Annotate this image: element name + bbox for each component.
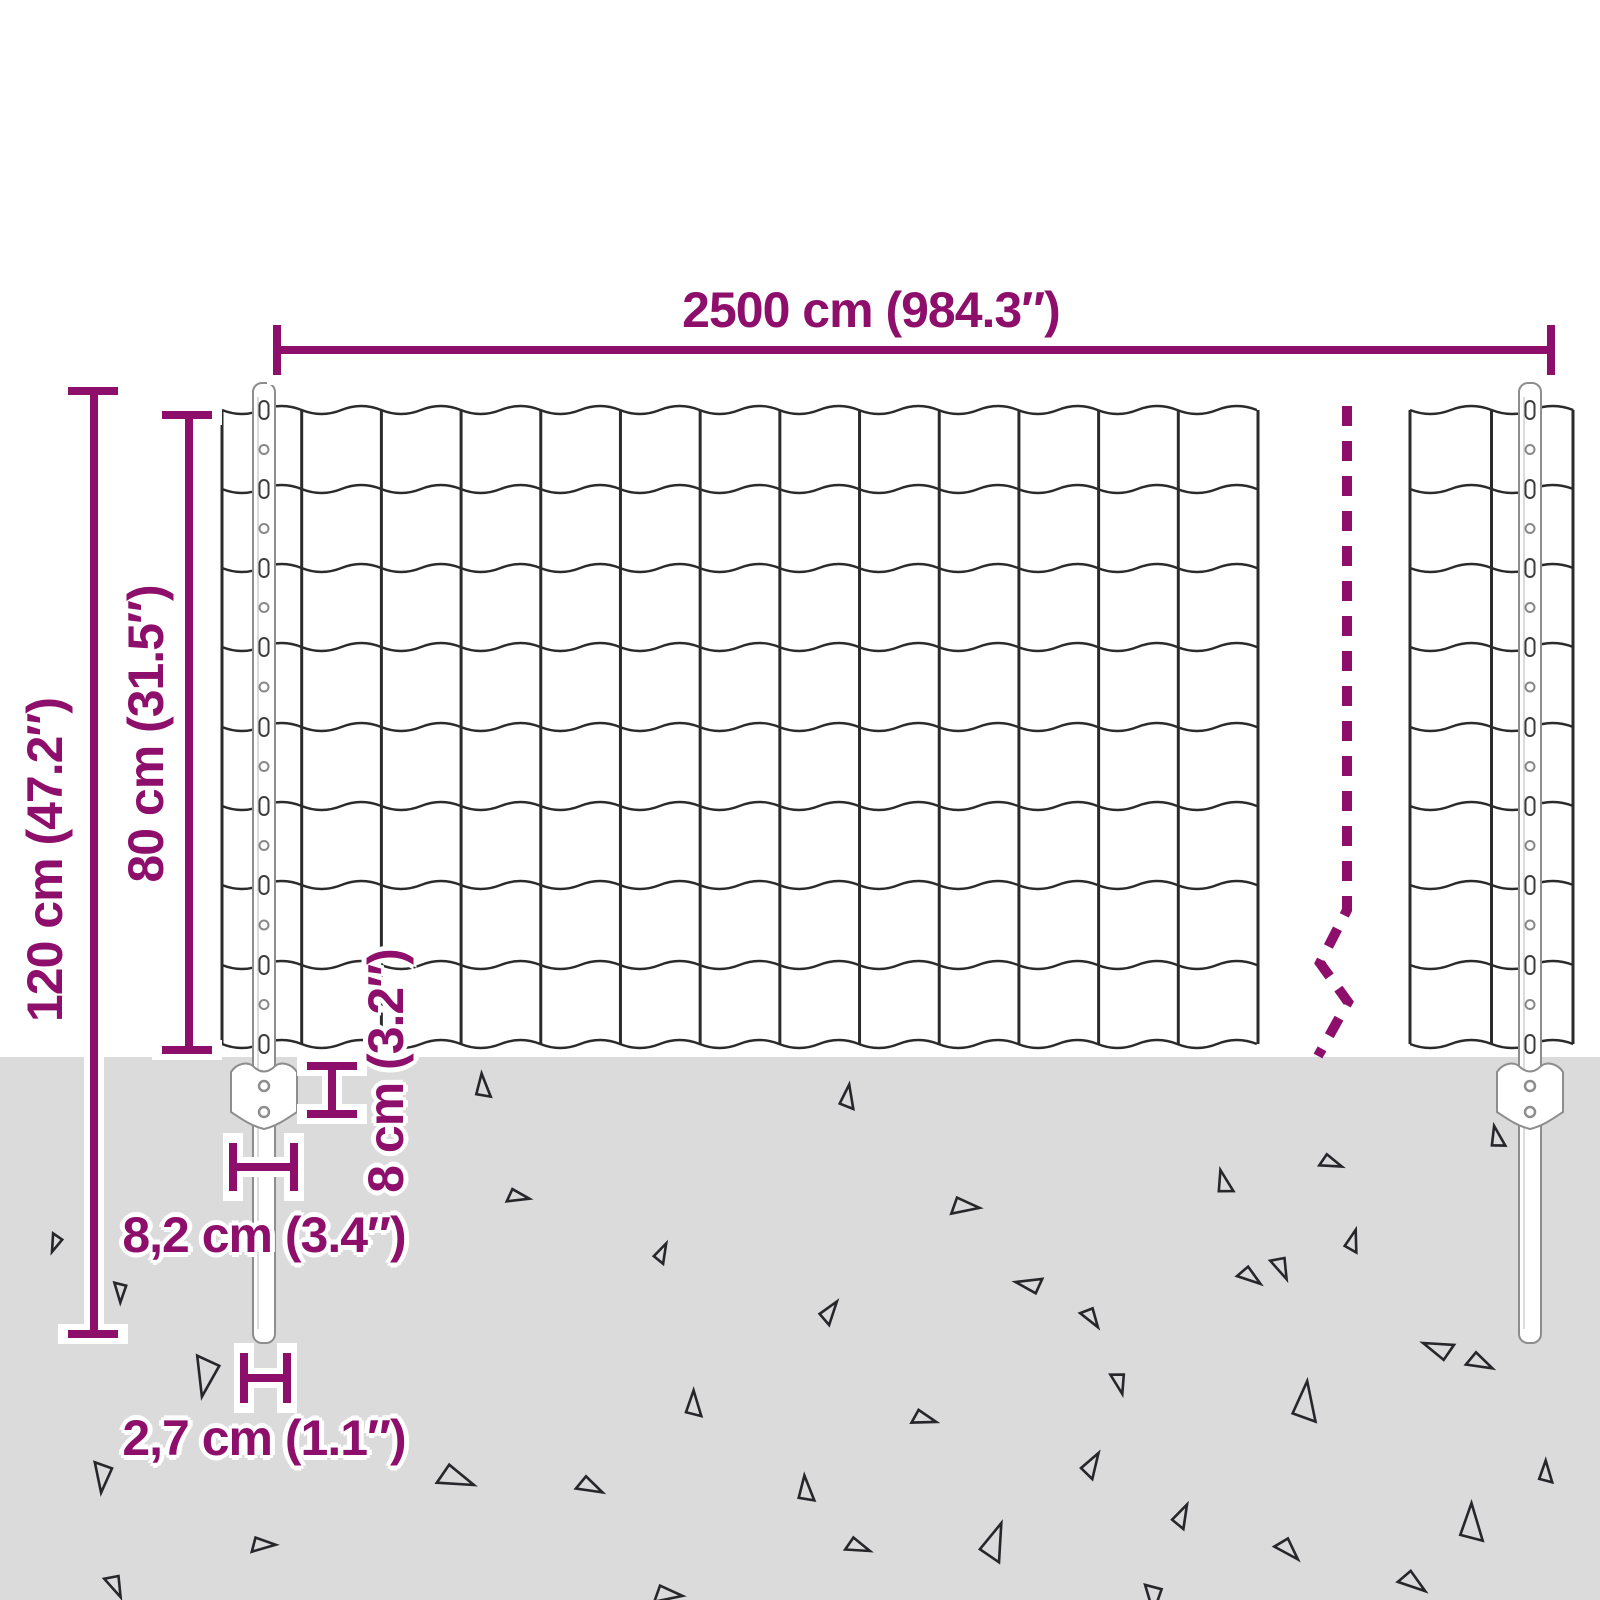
post-hole	[260, 524, 269, 533]
post-slot	[1526, 401, 1535, 419]
post-hole	[260, 762, 269, 771]
anchor-depth-label: 8 cm (3.2″)	[357, 949, 415, 1193]
post-slot	[1526, 559, 1535, 577]
plate-hole	[259, 1081, 269, 1091]
mesh-height-label: 80 cm (31.5″)	[117, 585, 175, 882]
post-hole	[1526, 445, 1535, 454]
length-label: 2500 cm (984.3″)	[682, 281, 1060, 339]
post-hole	[1526, 524, 1535, 533]
anchor-plate	[1497, 1064, 1563, 1129]
fence-post	[1519, 383, 1541, 1343]
post-hole	[260, 683, 269, 692]
post-slot	[260, 956, 269, 974]
fence-dimension-diagram: 2500 cm (984.3″) 120 cm (47.2″) 80 cm (3…	[0, 0, 1600, 1600]
post-hole	[1526, 921, 1535, 930]
post-slot	[1526, 956, 1535, 974]
fence-diagram-canvas	[0, 0, 1600, 1600]
post-slot	[260, 638, 269, 656]
post-slot	[260, 559, 269, 577]
post-slot	[260, 876, 269, 894]
horizontal-wire	[222, 802, 1257, 810]
anchor-width-label: 8,2 cm (3.4″)	[122, 1206, 405, 1264]
wire-mesh	[222, 406, 1573, 1048]
post-hole	[1526, 683, 1535, 692]
fence-post	[253, 383, 275, 1343]
post-slot	[1526, 797, 1535, 815]
post-slot	[260, 797, 269, 815]
post-hole	[260, 445, 269, 454]
plate-hole	[1525, 1107, 1535, 1117]
horizontal-wire	[222, 723, 1257, 731]
post-slot	[260, 480, 269, 498]
post-hole	[1526, 603, 1535, 612]
post-slot	[1526, 718, 1535, 736]
total-height-label: 120 cm (47.2″)	[16, 698, 74, 1022]
post-hole	[1526, 1000, 1535, 1009]
break-line	[1318, 406, 1348, 1056]
horizontal-wire	[222, 406, 1257, 414]
post-hole	[1526, 841, 1535, 850]
horizontal-wire	[222, 485, 1257, 493]
post-slot	[1526, 1035, 1535, 1053]
post-slot	[1526, 480, 1535, 498]
plate-hole	[1525, 1081, 1535, 1091]
horizontal-wire	[222, 881, 1257, 889]
horizontal-wire	[222, 643, 1257, 651]
post-slot	[1526, 638, 1535, 656]
post-hole	[260, 1000, 269, 1009]
post-slot	[260, 1035, 269, 1053]
post-slot	[1526, 876, 1535, 894]
plate-hole	[259, 1107, 269, 1117]
post-hole	[260, 841, 269, 850]
anchor-plate	[231, 1064, 297, 1129]
post-slot	[260, 718, 269, 736]
post-hole	[260, 603, 269, 612]
post-hole	[1526, 762, 1535, 771]
post-width-label: 2,7 cm (1.1″)	[122, 1409, 405, 1467]
horizontal-wire	[222, 564, 1257, 572]
post-slot	[260, 401, 269, 419]
post-hole	[260, 921, 269, 930]
